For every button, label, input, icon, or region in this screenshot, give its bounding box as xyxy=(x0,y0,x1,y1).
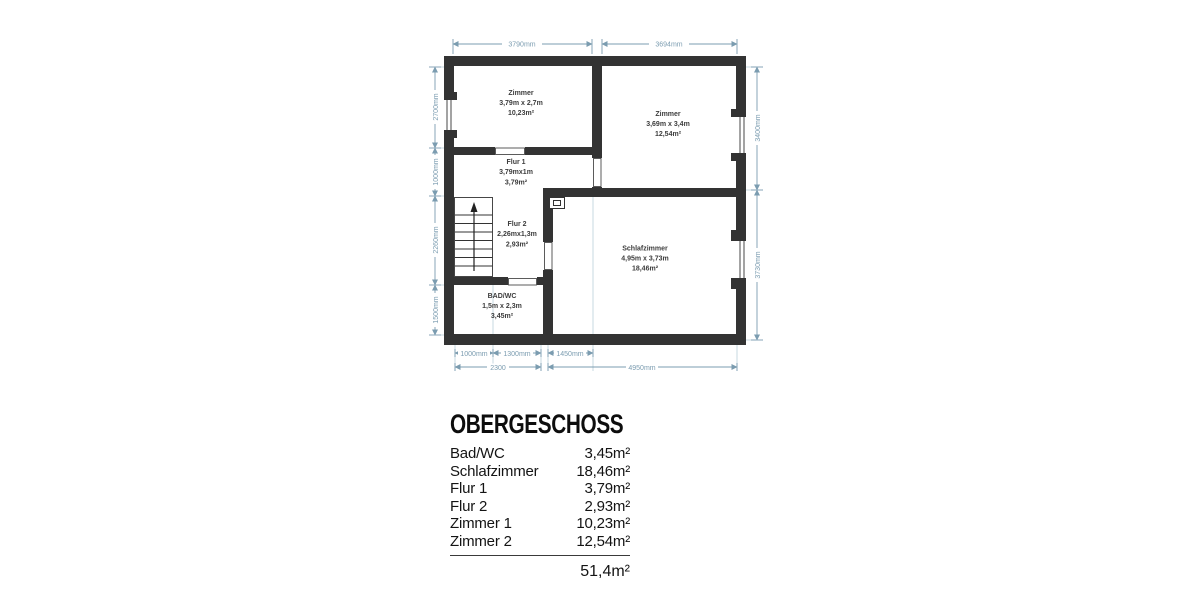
legend-room-name: Bad/WC xyxy=(450,445,505,463)
door-schlafzimmer xyxy=(542,242,554,270)
dimension-left: 2700mm 1000mm 2260mm 1500mm xyxy=(429,67,441,335)
door-badwc xyxy=(508,276,537,286)
svg-text:18,46m²: 18,46m² xyxy=(632,266,659,273)
stairs-up-arrow xyxy=(471,202,478,271)
legend-row-flur2: Flur 2 2,93m² xyxy=(450,498,630,516)
legend-room-area: 18,46m² xyxy=(576,463,630,481)
legend-room-area: 12,54m² xyxy=(576,533,630,551)
window-left-zimmer1 xyxy=(443,100,455,130)
svg-text:3730mm: 3730mm xyxy=(755,251,762,278)
window-right-schlafzimmer xyxy=(736,241,747,278)
dimension-bottom-row2: 2300 4950mm xyxy=(455,363,737,372)
room-label-zimmer2: Zimmer 3,69m x 3,4m 12,54m² xyxy=(646,111,690,138)
stairs xyxy=(455,198,493,277)
svg-text:2260mm: 2260mm xyxy=(433,226,440,253)
legend-row-zimmer2: Zimmer 2 12,54m² xyxy=(450,533,630,551)
wall-outer-right xyxy=(736,56,746,345)
wall-flur1-right xyxy=(525,147,592,155)
legend-room-name: Flur 1 xyxy=(450,480,487,498)
legend-room-area: 3,79m² xyxy=(585,480,631,498)
wall-schlafzimmer-left-upper xyxy=(543,188,553,242)
svg-text:2,26mx1,3m: 2,26mx1,3m xyxy=(497,231,537,238)
svg-text:Schlafzimmer: Schlafzimmer xyxy=(622,246,668,253)
svg-text:1450mm: 1450mm xyxy=(556,351,583,358)
svg-text:Zimmer: Zimmer xyxy=(508,90,534,97)
area-legend: OBERGESCHOSS Bad/WC 3,45m² Schlafzimmer … xyxy=(450,409,630,581)
svg-text:Flur 1: Flur 1 xyxy=(506,159,525,166)
room-label-flur1: Flur 1 3,79mx1m 3,79m² xyxy=(499,159,533,187)
svg-text:12,54m²: 12,54m² xyxy=(655,131,682,138)
legend-divider xyxy=(450,555,630,556)
svg-text:2300: 2300 xyxy=(490,365,506,372)
room-label-zimmer1: Zimmer 3,79m x 2,7m 10,23m² xyxy=(499,90,543,117)
legend-room-name: Flur 2 xyxy=(450,498,487,516)
room-label-badwc: BAD/WC 1,5m x 2,3m 3,45m² xyxy=(482,293,522,320)
svg-text:BAD/WC: BAD/WC xyxy=(488,293,517,300)
wall-outer-bottom xyxy=(444,334,746,345)
walls xyxy=(444,56,746,345)
svg-text:1000mm: 1000mm xyxy=(460,351,487,358)
legend-title: OBERGESCHOSS xyxy=(450,409,589,440)
legend-row-flur1: Flur 1 3,79m² xyxy=(450,480,630,498)
svg-text:Flur 2: Flur 2 xyxy=(507,221,526,228)
svg-text:3,79mx1m: 3,79mx1m xyxy=(499,169,533,176)
legend-room-area: 10,23m² xyxy=(576,515,630,533)
svg-text:3,45m²: 3,45m² xyxy=(491,313,514,320)
svg-text:3694mm: 3694mm xyxy=(655,42,682,49)
legend-room-name: Schlafzimmer xyxy=(450,463,538,481)
room-label-schlafzimmer: Schlafzimmer 4,95m x 3,73m 18,46m² xyxy=(621,246,668,273)
legend-room-area: 3,45m² xyxy=(585,445,631,463)
svg-text:2,93m²: 2,93m² xyxy=(506,242,529,249)
dimension-right: 3400mm 3730mm xyxy=(751,67,763,340)
svg-text:3,69m x 3,4m: 3,69m x 3,4m xyxy=(646,121,690,128)
svg-text:4,95m x 3,73m: 4,95m x 3,73m xyxy=(621,256,668,263)
svg-text:3,79m²: 3,79m² xyxy=(505,180,528,187)
dimension-top: 3790mm 3694mm xyxy=(453,39,737,54)
dimension-bottom-row1: 1000mm 1300mm 1450mm xyxy=(455,349,593,358)
svg-text:10,23m²: 10,23m² xyxy=(508,110,535,117)
svg-text:1000mm: 1000mm xyxy=(433,158,440,185)
svg-text:4950mm: 4950mm xyxy=(628,365,655,372)
svg-text:3400mm: 3400mm xyxy=(755,114,762,141)
svg-text:1300mm: 1300mm xyxy=(503,351,530,358)
window-right-zimmer2 xyxy=(736,117,747,153)
wall-zimmer-divider-upper xyxy=(592,66,602,158)
svg-text:3,79m x 2,7m: 3,79m x 2,7m xyxy=(499,100,543,107)
svg-text:1500mm: 1500mm xyxy=(433,296,440,323)
wall-outer-top xyxy=(444,56,746,66)
svg-text:1,5m x 2,3m: 1,5m x 2,3m xyxy=(482,303,522,310)
room-label-flur2: Flur 2 2,26mx1,3m 2,93m² xyxy=(497,221,537,249)
door-flur1-zimmer1 xyxy=(495,146,525,156)
svg-text:3790mm: 3790mm xyxy=(508,42,535,49)
legend-row-schlafzimmer: Schlafzimmer 18,46m² xyxy=(450,463,630,481)
svg-text:Zimmer: Zimmer xyxy=(655,111,681,118)
legend-row-zimmer1: Zimmer 1 10,23m² xyxy=(450,515,630,533)
legend-total: 51,4m² xyxy=(450,563,630,581)
legend-room-name: Zimmer 1 xyxy=(450,515,512,533)
fixture-icon xyxy=(550,198,565,209)
wall-badwc-top-left xyxy=(454,277,508,285)
wall-flur1-left xyxy=(454,147,495,155)
legend-row-badwc: Bad/WC 3,45m² xyxy=(450,445,630,463)
wall-badwc-top-right xyxy=(537,277,543,285)
door-zimmer2 xyxy=(591,158,603,187)
legend-room-name: Zimmer 2 xyxy=(450,533,512,551)
svg-text:2700mm: 2700mm xyxy=(433,93,440,120)
legend-room-area: 2,93m² xyxy=(585,498,631,516)
wall-schlafzimmer-top xyxy=(543,188,736,197)
wall-schlafzimmer-left-lower xyxy=(543,270,553,335)
